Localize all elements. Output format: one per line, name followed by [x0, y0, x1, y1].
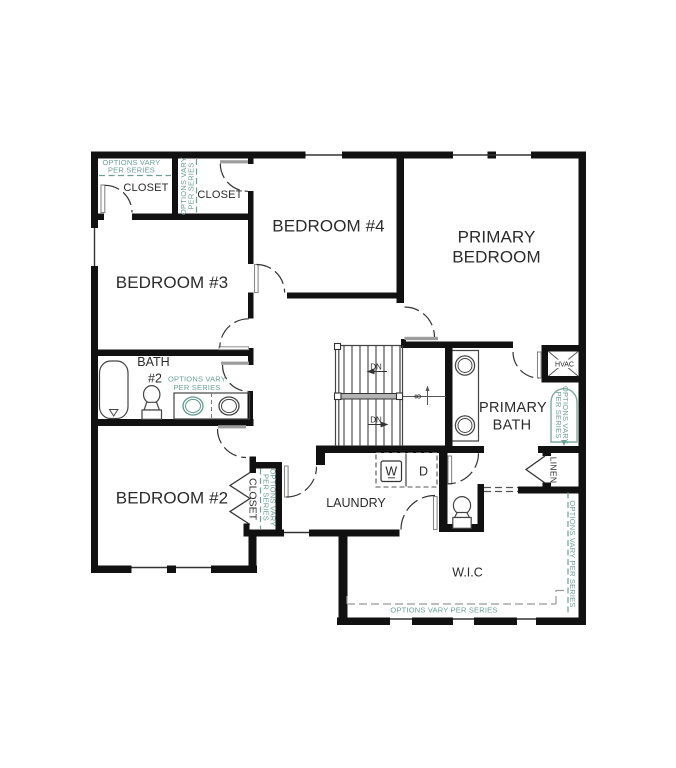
svg-text:8: 8 — [413, 394, 423, 399]
svg-text:PRIMARY: PRIMARY — [458, 228, 536, 247]
svg-text:BEDROOM #4: BEDROOM #4 — [272, 217, 384, 236]
svg-text:BEDROOM #2: BEDROOM #2 — [116, 489, 228, 508]
svg-text:BATH: BATH — [493, 418, 532, 434]
svg-text:HVAC: HVAC — [555, 362, 574, 369]
svg-text:BATH: BATH — [137, 355, 169, 369]
svg-text:W.I.C: W.I.C — [452, 566, 483, 580]
svg-text:PER SERIES: PER SERIES — [554, 391, 563, 438]
svg-text:D: D — [419, 465, 428, 479]
svg-text:W: W — [385, 465, 397, 479]
svg-text:DN: DN — [370, 416, 382, 425]
svg-text:#2: #2 — [148, 372, 162, 386]
svg-text:LAUNDRY: LAUNDRY — [326, 496, 386, 510]
svg-text:PER SERIES: PER SERIES — [187, 162, 196, 209]
svg-text:LINEN: LINEN — [549, 457, 559, 484]
svg-text:PER SERIES: PER SERIES — [262, 474, 271, 521]
svg-text:OPTIONS VARY PER SERIES: OPTIONS VARY PER SERIES — [568, 500, 577, 607]
svg-text:OPTIONS VARY PER SERIES: OPTIONS VARY PER SERIES — [390, 606, 497, 615]
svg-text:CLOSET: CLOSET — [123, 182, 168, 194]
svg-text:PER SERIES: PER SERIES — [108, 166, 155, 175]
svg-text:PER SERIES: PER SERIES — [173, 383, 220, 392]
svg-text:PRIMARY: PRIMARY — [479, 400, 547, 416]
svg-text:BEDROOM: BEDROOM — [452, 248, 541, 267]
svg-text:CLOSET: CLOSET — [247, 478, 259, 521]
svg-text:CLOSET: CLOSET — [197, 189, 242, 201]
svg-text:BEDROOM #3: BEDROOM #3 — [116, 273, 228, 292]
